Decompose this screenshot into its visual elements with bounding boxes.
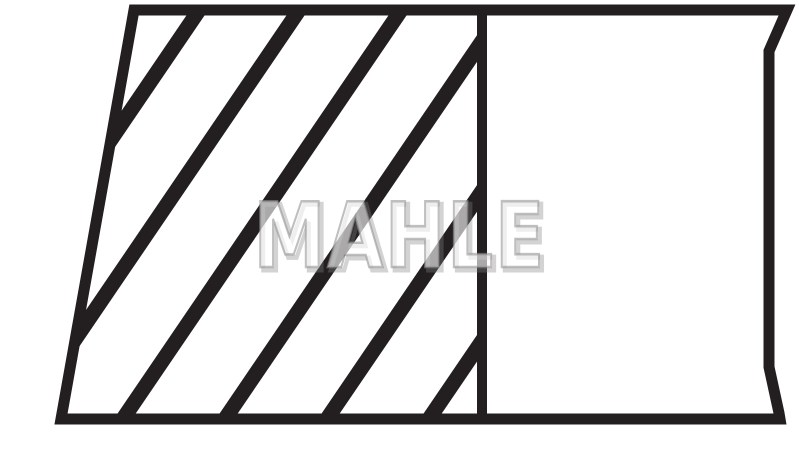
mahle-watermark: MAHLE MAHLE (254, 184, 550, 292)
watermark-main: MAHLE (254, 184, 547, 289)
piston-ring-cross-section-diagram: MAHLE MAHLE (0, 0, 799, 473)
figure-canvas: MAHLE MAHLE (0, 0, 799, 473)
watermark-text: MAHLE (254, 184, 547, 289)
